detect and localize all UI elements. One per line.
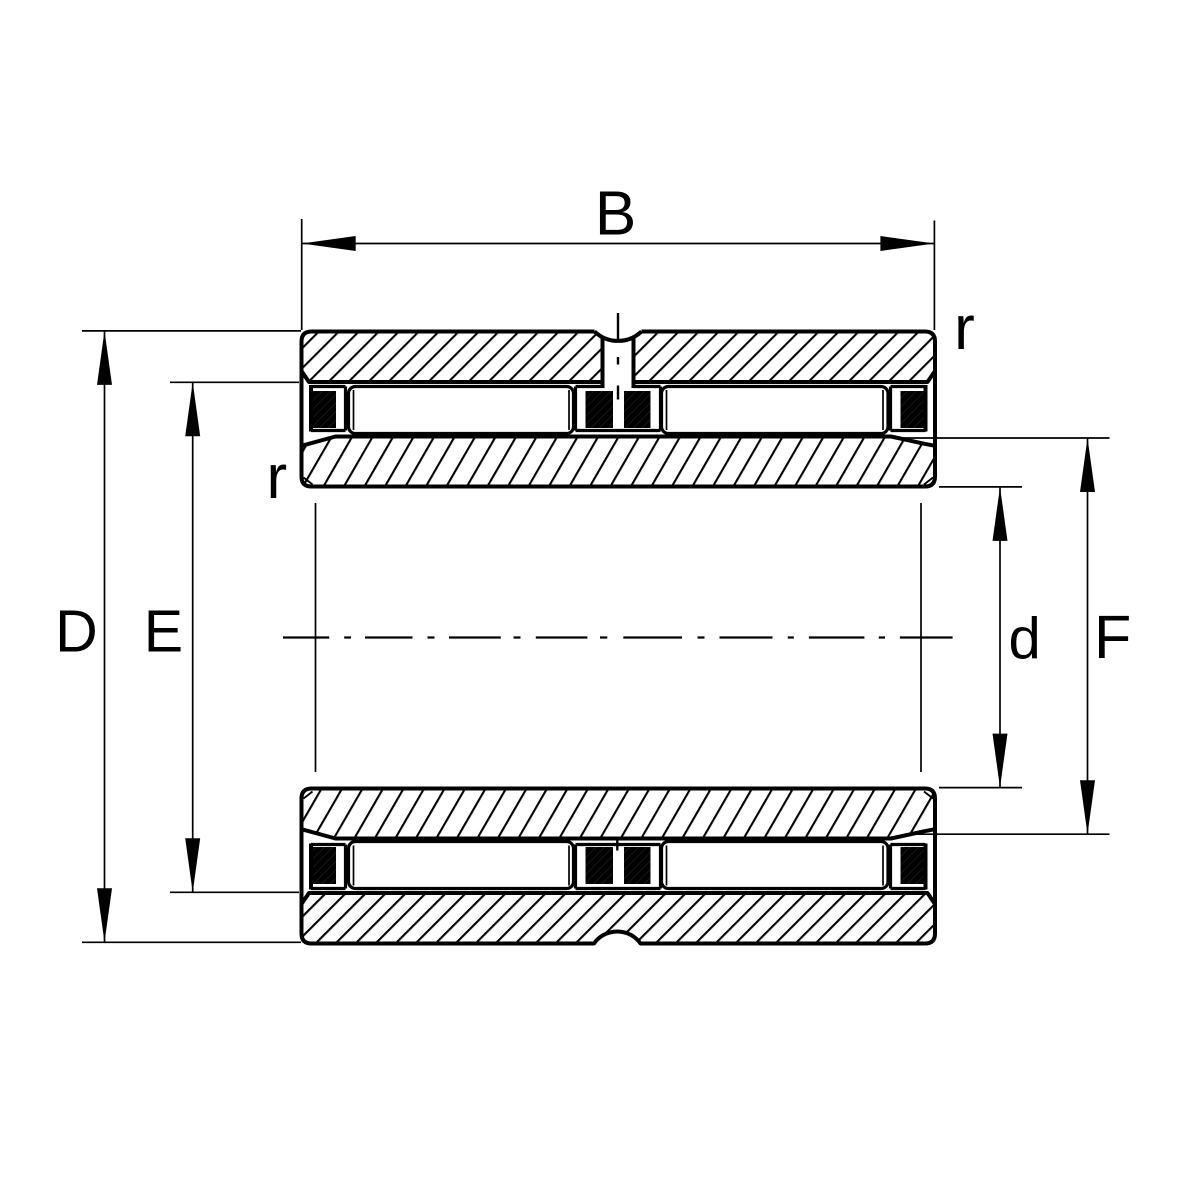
svg-text:B: B [595, 180, 636, 249]
svg-text:E: E [144, 599, 183, 665]
svg-text:D: D [55, 599, 98, 665]
svg-text:F: F [1094, 603, 1131, 671]
svg-text:r: r [266, 443, 287, 512]
svg-text:d: d [1008, 607, 1040, 672]
svg-text:r: r [954, 294, 975, 363]
